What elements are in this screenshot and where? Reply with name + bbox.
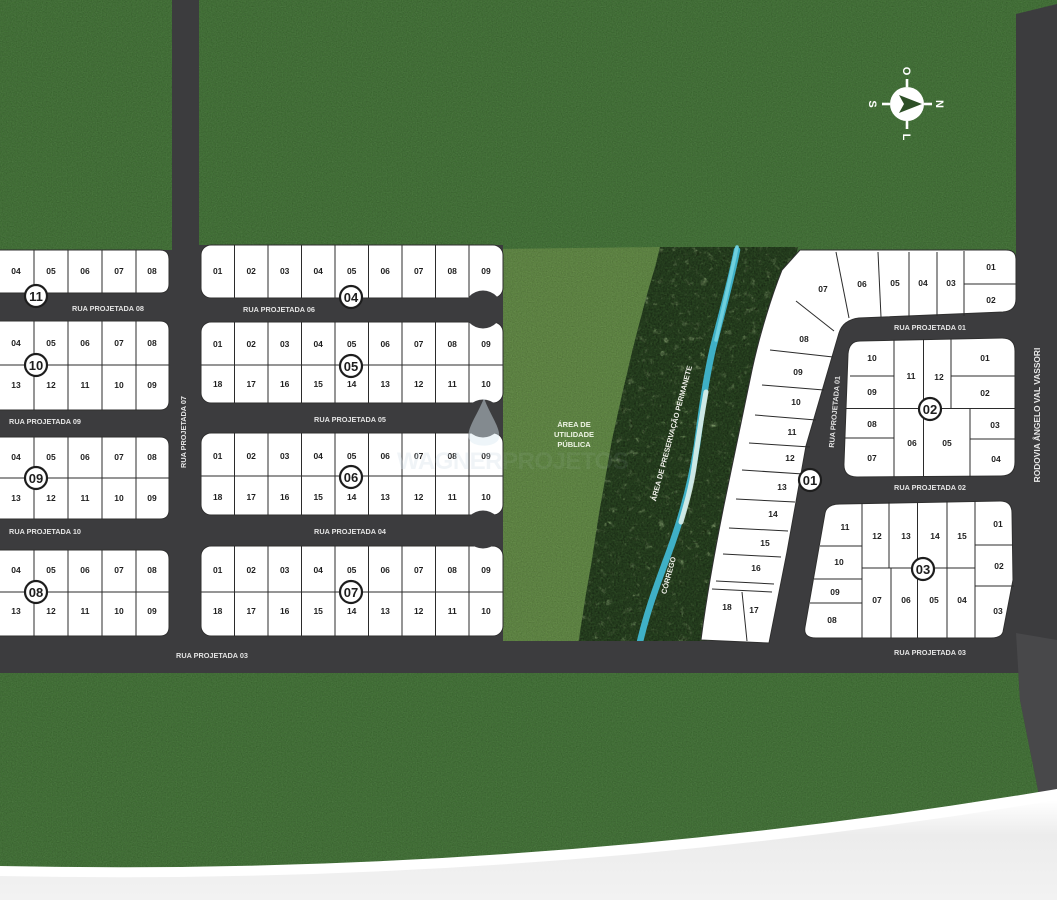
svg-text:08: 08 (447, 339, 457, 349)
svg-text:11: 11 (841, 522, 850, 532)
svg-text:07: 07 (414, 266, 424, 276)
svg-text:05: 05 (929, 595, 939, 605)
svg-text:S: S (866, 100, 878, 107)
svg-text:RUA PROJETADA 06: RUA PROJETADA 06 (243, 305, 315, 314)
svg-text:UTILIDADE: UTILIDADE (554, 430, 594, 439)
svg-text:13: 13 (11, 606, 21, 616)
svg-text:02: 02 (986, 295, 996, 305)
svg-text:10: 10 (481, 492, 491, 502)
svg-text:02: 02 (923, 402, 937, 417)
svg-text:01: 01 (213, 339, 223, 349)
svg-text:08: 08 (827, 615, 837, 625)
svg-text:17: 17 (246, 379, 256, 389)
svg-text:06: 06 (907, 438, 917, 448)
svg-text:04: 04 (344, 290, 359, 305)
svg-text:RUA PROJETADA 08: RUA PROJETADA 08 (72, 304, 144, 313)
svg-text:09: 09 (147, 380, 157, 390)
svg-text:01: 01 (803, 473, 817, 488)
svg-text:06: 06 (380, 339, 390, 349)
svg-text:04: 04 (11, 338, 21, 348)
svg-text:16: 16 (280, 492, 290, 502)
svg-text:01: 01 (213, 565, 223, 575)
svg-text:05: 05 (46, 452, 56, 462)
svg-text:09: 09 (481, 565, 491, 575)
svg-text:07: 07 (872, 595, 882, 605)
svg-text:08: 08 (867, 419, 877, 429)
svg-text:10: 10 (29, 358, 43, 373)
svg-text:RUA PROJETADA 04: RUA PROJETADA 04 (314, 527, 387, 536)
svg-text:07: 07 (867, 453, 877, 463)
svg-text:13: 13 (777, 482, 787, 492)
svg-text:05: 05 (347, 339, 357, 349)
svg-text:11: 11 (907, 371, 916, 381)
svg-text:L: L (900, 134, 912, 141)
svg-text:13: 13 (11, 493, 21, 503)
svg-text:09: 09 (481, 339, 491, 349)
svg-text:09: 09 (867, 387, 877, 397)
svg-text:03: 03 (280, 339, 290, 349)
svg-text:08: 08 (147, 452, 157, 462)
svg-text:09: 09 (793, 367, 803, 377)
svg-text:08: 08 (447, 266, 457, 276)
svg-text:10: 10 (114, 606, 124, 616)
svg-text:15: 15 (313, 379, 323, 389)
svg-text:03: 03 (280, 266, 290, 276)
svg-text:09: 09 (29, 471, 43, 486)
svg-text:10: 10 (481, 606, 491, 616)
svg-text:07: 07 (114, 266, 124, 276)
svg-text:04: 04 (918, 278, 928, 288)
svg-text:16: 16 (280, 379, 290, 389)
svg-text:02: 02 (246, 565, 256, 575)
svg-text:05: 05 (46, 266, 56, 276)
svg-text:06: 06 (380, 266, 390, 276)
svg-text:08: 08 (147, 565, 157, 575)
svg-text:07: 07 (818, 284, 828, 294)
svg-text:12: 12 (46, 606, 56, 616)
svg-text:05: 05 (46, 338, 56, 348)
svg-text:07: 07 (114, 565, 124, 575)
svg-text:14: 14 (347, 379, 357, 389)
svg-text:04: 04 (11, 266, 21, 276)
svg-text:06: 06 (901, 595, 911, 605)
svg-text:08: 08 (147, 266, 157, 276)
svg-text:06: 06 (857, 279, 867, 289)
svg-text:16: 16 (280, 606, 290, 616)
svg-text:03: 03 (993, 606, 1003, 616)
svg-text:07: 07 (114, 338, 124, 348)
svg-text:02: 02 (246, 266, 256, 276)
svg-text:05: 05 (347, 266, 357, 276)
svg-text:03: 03 (280, 565, 290, 575)
svg-text:12: 12 (414, 492, 424, 502)
svg-text:08: 08 (799, 334, 809, 344)
svg-text:RUA PROJETADA 10: RUA PROJETADA 10 (9, 527, 81, 536)
svg-text:02: 02 (246, 451, 256, 461)
svg-text:07: 07 (344, 585, 358, 600)
svg-text:13: 13 (380, 492, 390, 502)
svg-text:14: 14 (768, 509, 778, 519)
svg-text:06: 06 (80, 338, 90, 348)
svg-text:01: 01 (986, 262, 996, 272)
svg-text:03: 03 (946, 278, 956, 288)
svg-text:06: 06 (344, 470, 358, 485)
svg-text:11: 11 (448, 606, 457, 616)
svg-text:10: 10 (114, 380, 124, 390)
svg-text:04: 04 (957, 595, 967, 605)
svg-text:09: 09 (147, 493, 157, 503)
svg-text:07: 07 (114, 452, 124, 462)
svg-text:08: 08 (29, 585, 43, 600)
svg-text:06: 06 (80, 266, 90, 276)
svg-text:09: 09 (830, 587, 840, 597)
svg-text:12: 12 (46, 493, 56, 503)
svg-text:01: 01 (993, 519, 1003, 529)
svg-text:11: 11 (788, 427, 797, 437)
svg-text:N: N (933, 100, 945, 108)
svg-text:17: 17 (246, 492, 256, 502)
svg-text:01: 01 (980, 353, 990, 363)
svg-text:06: 06 (380, 565, 390, 575)
svg-text:06: 06 (80, 452, 90, 462)
svg-text:RUA PROJETADA 03: RUA PROJETADA 03 (176, 651, 248, 660)
svg-text:12: 12 (934, 372, 944, 382)
svg-text:04: 04 (991, 454, 1001, 464)
svg-text:11: 11 (448, 492, 457, 502)
svg-text:13: 13 (11, 380, 21, 390)
svg-text:17: 17 (246, 606, 256, 616)
svg-text:WAGNER: WAGNER (397, 448, 502, 475)
svg-text:18: 18 (213, 492, 223, 502)
svg-text:12: 12 (414, 379, 424, 389)
svg-text:11: 11 (81, 606, 90, 616)
svg-text:05: 05 (344, 359, 358, 374)
svg-text:12: 12 (46, 380, 56, 390)
svg-text:RODOVIA ÂNGELO VAL VASSORI: RODOVIA ÂNGELO VAL VASSORI (1031, 348, 1042, 483)
svg-text:RUA PROJETADA 07: RUA PROJETADA 07 (179, 396, 188, 468)
svg-text:10: 10 (834, 557, 844, 567)
svg-text:06: 06 (80, 565, 90, 575)
svg-text:07: 07 (414, 565, 424, 575)
svg-text:03: 03 (916, 562, 930, 577)
svg-text:02: 02 (246, 339, 256, 349)
svg-text:08: 08 (447, 565, 457, 575)
svg-text:02: 02 (980, 388, 990, 398)
svg-text:RUA PROJETADA 02: RUA PROJETADA 02 (894, 483, 966, 492)
svg-text:14: 14 (930, 531, 940, 541)
svg-text:15: 15 (760, 538, 770, 548)
svg-text:ÁREA DE: ÁREA DE (557, 420, 590, 429)
svg-text:11: 11 (81, 493, 90, 503)
svg-text:O: O (900, 67, 912, 76)
svg-text:04: 04 (313, 451, 323, 461)
svg-text:05: 05 (942, 438, 952, 448)
svg-text:13: 13 (380, 606, 390, 616)
svg-text:13: 13 (380, 379, 390, 389)
svg-text:07: 07 (414, 339, 424, 349)
svg-text:18: 18 (213, 379, 223, 389)
svg-text:05: 05 (347, 565, 357, 575)
svg-text:16: 16 (751, 563, 761, 573)
svg-text:08: 08 (147, 338, 157, 348)
svg-text:14: 14 (347, 606, 357, 616)
svg-text:RUA PROJETADA 09: RUA PROJETADA 09 (9, 417, 81, 426)
svg-text:15: 15 (313, 492, 323, 502)
svg-text:04: 04 (313, 266, 323, 276)
svg-text:04: 04 (313, 339, 323, 349)
svg-text:09: 09 (481, 266, 491, 276)
svg-text:15: 15 (313, 606, 323, 616)
svg-text:10: 10 (791, 397, 801, 407)
svg-text:17: 17 (749, 605, 759, 615)
svg-text:02: 02 (994, 561, 1004, 571)
svg-text:RUA PROJETADA 05: RUA PROJETADA 05 (314, 415, 386, 424)
svg-text:05: 05 (890, 278, 900, 288)
svg-text:05: 05 (46, 565, 56, 575)
svg-text:14: 14 (347, 492, 357, 502)
svg-text:01: 01 (213, 266, 223, 276)
svg-text:PROJETOS: PROJETOS (502, 448, 629, 475)
svg-text:18: 18 (213, 606, 223, 616)
svg-text:10: 10 (867, 353, 877, 363)
svg-text:11: 11 (448, 379, 457, 389)
svg-text:04: 04 (11, 565, 21, 575)
svg-text:04: 04 (11, 452, 21, 462)
svg-text:04: 04 (313, 565, 323, 575)
svg-text:13: 13 (901, 531, 911, 541)
svg-text:09: 09 (147, 606, 157, 616)
svg-text:RUA PROJETADA 03: RUA PROJETADA 03 (894, 648, 966, 657)
svg-text:10: 10 (114, 493, 124, 503)
svg-text:05: 05 (347, 451, 357, 461)
svg-text:03: 03 (280, 451, 290, 461)
svg-text:01: 01 (213, 451, 223, 461)
svg-text:06: 06 (380, 451, 390, 461)
svg-text:11: 11 (29, 289, 43, 304)
svg-text:11: 11 (81, 380, 90, 390)
svg-text:15: 15 (957, 531, 967, 541)
svg-text:RUA PROJETADA 01: RUA PROJETADA 01 (894, 323, 966, 332)
svg-text:10: 10 (481, 379, 491, 389)
svg-text:12: 12 (872, 531, 882, 541)
svg-text:18: 18 (722, 602, 732, 612)
svg-text:12: 12 (414, 606, 424, 616)
svg-text:03: 03 (990, 420, 1000, 430)
svg-text:12: 12 (785, 453, 795, 463)
